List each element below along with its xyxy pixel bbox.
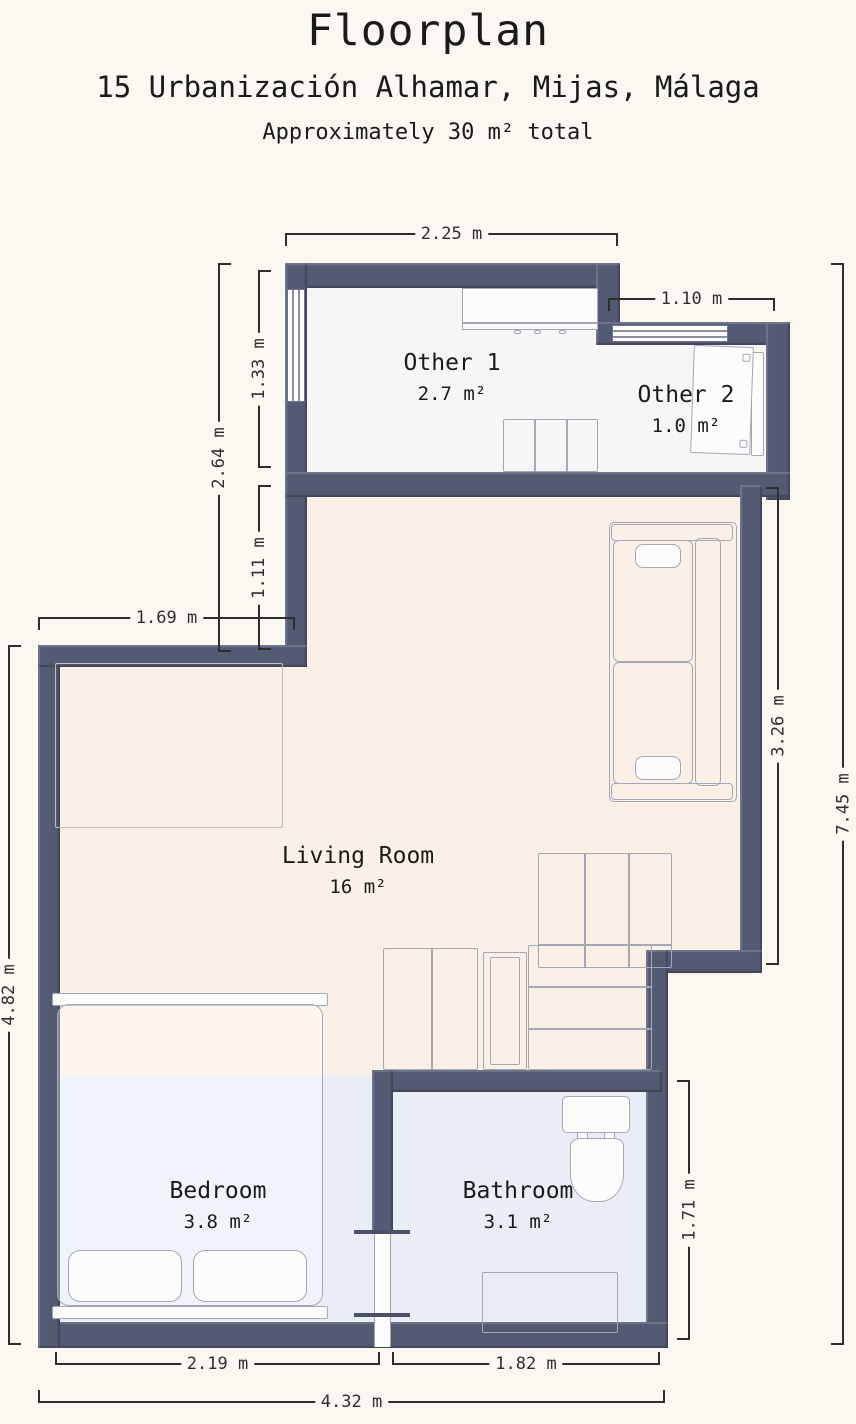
page-title: Floorplan: [0, 6, 856, 56]
sofa-pillow: [635, 756, 681, 780]
dresser-unit: [528, 945, 652, 1070]
dim-label: 1.82 m: [489, 1354, 562, 1374]
address-subtitle: 15 Urbanización Alhamar, Mijas, Málaga: [0, 70, 856, 104]
room-label-other2: Other 2 1.0 m²: [596, 382, 776, 437]
dim-label: 3.26 m: [768, 689, 788, 762]
wall-other1-top: [285, 263, 618, 288]
room-area: 1.0 m²: [596, 415, 776, 437]
room-area: 2.7 m²: [342, 383, 562, 405]
dim-total-width: 4.32 m: [38, 1390, 665, 1403]
sofa-pillow: [635, 544, 681, 568]
dim-lower-left-height: 4.82 m: [8, 645, 21, 1345]
bed-pillow-right: [193, 1250, 307, 1302]
cabinet-divider: [534, 420, 536, 471]
counter-edge-line: [463, 322, 597, 324]
counter-knob: [559, 330, 566, 334]
dim-label: 1.71 m: [679, 1173, 699, 1246]
kitchen-counter: [462, 288, 598, 336]
dim-label: 2.25 m: [415, 224, 488, 244]
dim-label: 4.82 m: [0, 958, 19, 1031]
door-hinge: [742, 354, 750, 362]
window-other2-top: [612, 325, 728, 342]
cabinet-divider: [566, 420, 568, 471]
sofa: [609, 522, 737, 802]
room-label-living: Living Room 16 m²: [248, 843, 468, 898]
header: Floorplan 15 Urbanización Alhamar, Mijas…: [0, 0, 856, 145]
room-name: Other 1: [342, 350, 562, 376]
dim-bedroom-width: 2.19 m: [55, 1352, 380, 1365]
counter-body: [462, 288, 598, 330]
bed-pillow-left: [68, 1250, 182, 1302]
total-area-note: Approximately 30 m² total: [0, 120, 856, 145]
floorplan-page: { "header": { "title": "Floorplan", "add…: [0, 0, 856, 1424]
sofa-backrest: [695, 538, 721, 786]
dim-label: 7.45 m: [833, 767, 853, 840]
dim-bathroom-height: 1.71 m: [677, 1080, 690, 1340]
room-area: 3.1 m²: [408, 1211, 628, 1233]
toilet-tank: [562, 1096, 630, 1133]
room-name: Bathroom: [408, 1178, 628, 1204]
door-jamb-tick-top: [354, 1230, 410, 1234]
dim-label: 4.32 m: [315, 1392, 388, 1412]
room-area: 16 m²: [248, 876, 468, 898]
shower-tray: [482, 1272, 618, 1333]
rug: [55, 663, 283, 828]
dim-other2-width: 1.10 m: [608, 298, 775, 311]
dim-upper-left-total: 2.64 m: [218, 263, 231, 652]
door-hinge: [739, 440, 747, 448]
wall-living-right: [740, 485, 762, 973]
wardrobe-two-door: [383, 948, 478, 1070]
room-label-bedroom: Bedroom 3.8 m²: [108, 1178, 328, 1233]
dim-other1-width: 2.25 m: [285, 233, 618, 246]
tall-cabinet-inner: [490, 957, 520, 1065]
wall-bed-bath-divider: [372, 1070, 393, 1233]
bed-footboard: [52, 1306, 328, 1319]
bathroom-door-opening: [374, 1233, 391, 1347]
dim-bathroom-width: 1.82 m: [392, 1352, 660, 1365]
wardrobe-divider: [431, 949, 433, 1069]
dresser-line: [529, 986, 651, 988]
counter-knob: [534, 330, 541, 334]
dim-other1-height: 1.33 m: [258, 270, 271, 468]
room-name: Other 2: [596, 382, 776, 408]
window-other1-left: [287, 289, 305, 402]
room-name: Living Room: [248, 843, 468, 869]
room-label-bathroom: Bathroom 3.1 m²: [408, 1178, 628, 1233]
dim-total-height: 7.45 m: [831, 263, 844, 1345]
bed: [52, 993, 328, 1320]
room-label-other1: Other 1 2.7 m²: [342, 350, 562, 405]
dim-label: 1.11 m: [249, 531, 269, 604]
dim-label: 1.10 m: [655, 289, 728, 309]
dim-step-width: 1.69 m: [38, 617, 295, 630]
wall-bathroom-top: [372, 1070, 662, 1092]
door-jamb-tick-bottom: [354, 1313, 410, 1317]
room-area: 3.8 m²: [108, 1211, 328, 1233]
counter-knob: [514, 330, 521, 334]
dim-label: 2.64 m: [209, 421, 229, 494]
dim-living-right-height: 3.26 m: [766, 487, 779, 965]
room-name: Bedroom: [108, 1178, 328, 1204]
tall-cabinet: [483, 952, 527, 1070]
cabinet-three-door: [503, 419, 598, 472]
wall-others-bottom: [285, 472, 790, 497]
dresser-line: [529, 1028, 651, 1030]
dim-label: 1.33 m: [249, 332, 269, 405]
dim-label: 1.69 m: [130, 608, 203, 628]
dim-label: 2.19 m: [181, 1354, 254, 1374]
